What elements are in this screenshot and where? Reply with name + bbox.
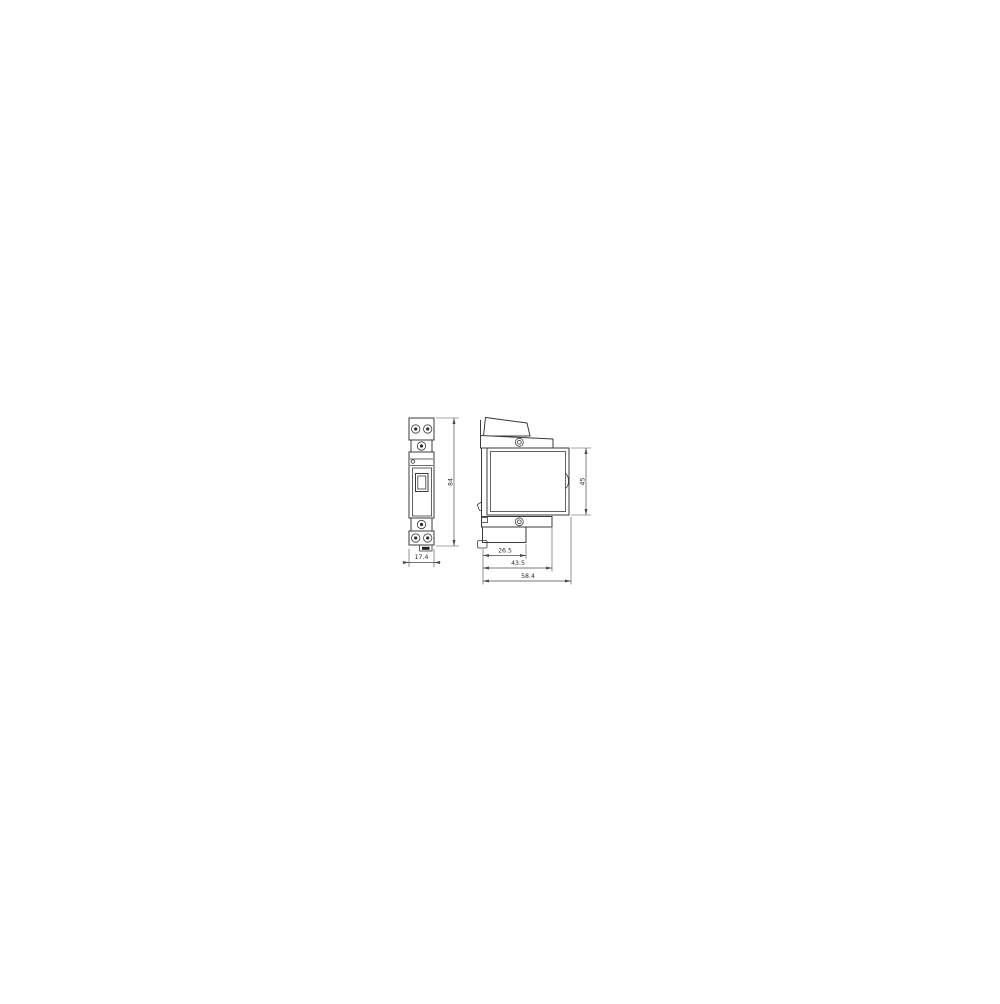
front-top-screw-right xyxy=(424,425,432,433)
side-top-terminal-cover xyxy=(481,436,554,449)
front-switch-lever-inner xyxy=(418,476,426,489)
dim-label-depth-overall: 58.4 xyxy=(521,573,535,580)
front-bottom-screw-left xyxy=(412,534,420,542)
technical-drawing: 84 17.4 xyxy=(0,0,1000,1000)
dim-depth-terminal: 43.5 xyxy=(483,528,552,572)
side-switch-bump xyxy=(566,474,569,489)
side-top-cap xyxy=(484,418,531,437)
dim-side-body-height: 45 xyxy=(571,448,591,515)
front-bottom-screw-right xyxy=(424,534,432,542)
side-body xyxy=(487,448,569,515)
front-lower-center-screw xyxy=(417,520,425,528)
side-body-inner xyxy=(491,452,566,512)
dim-front-width: 17.4 xyxy=(403,549,441,567)
dim-label-side-body-height: 45 xyxy=(580,478,587,486)
dim-label-depth-step: 26.5 xyxy=(498,548,512,555)
front-din-clip-slot xyxy=(422,547,430,550)
front-indicator-dot xyxy=(411,460,415,464)
dim-label-front-height: 84 xyxy=(448,478,455,486)
side-bottom-terminal-cover xyxy=(482,517,553,528)
drawing-svg: 84 17.4 xyxy=(0,0,1000,1000)
front-upper-center-screw xyxy=(417,442,425,450)
front-top-screw-left xyxy=(412,425,420,433)
side-view xyxy=(477,418,569,549)
front-view xyxy=(409,418,434,551)
dim-front-height: 84 xyxy=(436,418,459,546)
dim-label-front-width: 17.4 xyxy=(415,554,429,561)
front-bottom-terminal-block xyxy=(409,531,434,545)
side-din-hook xyxy=(477,502,481,511)
dim-label-depth-terminal: 43.5 xyxy=(511,560,525,567)
side-lower-step xyxy=(483,527,527,543)
front-top-terminal-block xyxy=(409,418,434,440)
